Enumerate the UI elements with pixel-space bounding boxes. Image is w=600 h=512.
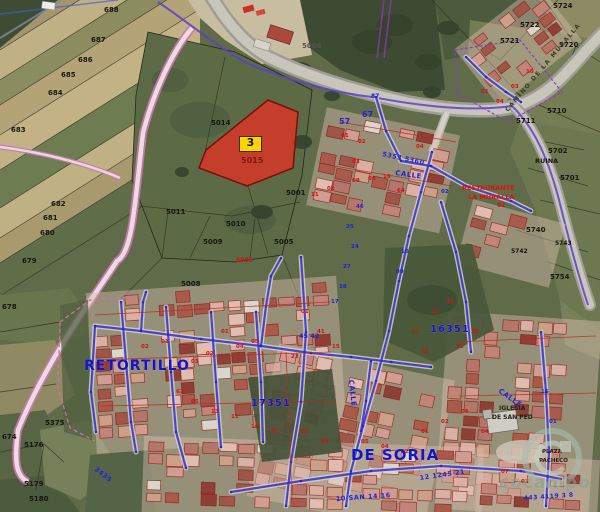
map-label: 08: [368, 176, 376, 182]
map-label: 03: [321, 439, 329, 445]
map-label: 687: [91, 36, 106, 44]
street-node: [431, 151, 434, 154]
map-label: RUINA: [535, 157, 558, 165]
map-label: 5008: [181, 280, 201, 288]
street-node: [390, 361, 393, 364]
map-label: 01: [271, 429, 279, 435]
street-node: [345, 505, 348, 508]
street-node: [135, 451, 138, 454]
map-label: 16351: [430, 324, 470, 335]
street-node: [408, 235, 411, 238]
street-node: [215, 381, 218, 384]
map-label: 11: [231, 414, 239, 420]
map-label: 5711: [516, 117, 536, 125]
map-label: 682: [51, 200, 66, 208]
map-canvas[interactable]: 6886876866856846836826816806796786745375…: [0, 0, 600, 512]
map-label: 685: [61, 71, 76, 79]
map-label: 03: [191, 359, 199, 365]
street-node: [505, 91, 508, 94]
map-label: 27: [343, 264, 351, 270]
map-label: 13: [211, 409, 219, 415]
street-node: [280, 257, 283, 260]
map-label: 05: [461, 409, 469, 415]
map-label: 5015: [241, 156, 264, 165]
street-node: [485, 76, 488, 79]
map-label: 25: [346, 224, 354, 230]
map-label: 22: [291, 354, 299, 360]
map-label: 01: [161, 339, 169, 345]
street-node: [300, 256, 303, 259]
map-label: 10: [401, 249, 409, 255]
map-label: 5009: [203, 238, 223, 246]
map-label: 5011: [166, 208, 186, 216]
street-node: [350, 356, 353, 359]
map-label: 64: [397, 188, 405, 194]
map-label: 02: [327, 186, 335, 192]
map-label: 681: [43, 214, 58, 222]
map-label: 03: [511, 84, 519, 90]
map-label: DE SORIA: [351, 446, 439, 464]
street-node: [255, 311, 258, 314]
map-label: 45 42: [299, 332, 319, 340]
map-label: 04: [236, 344, 244, 350]
street-node: [230, 491, 233, 494]
street-node: [130, 421, 133, 424]
map-label: 16: [383, 174, 391, 180]
street-node: [200, 338, 203, 341]
map-label: 680: [40, 229, 55, 237]
street-node: [465, 301, 468, 304]
map-label: PLAZA: [542, 449, 563, 455]
street-node: [185, 467, 188, 470]
street-node: [370, 360, 373, 363]
map-label: 12: [431, 309, 439, 315]
street-node: [285, 505, 288, 508]
map-label: 01: [421, 429, 429, 435]
map-label: 10: [251, 424, 259, 430]
street-node: [465, 56, 468, 59]
truck: [42, 1, 56, 10]
street-node: [270, 275, 273, 278]
map-label: 05: [251, 339, 259, 345]
map-label: 24: [351, 244, 359, 250]
map-label: 05: [191, 399, 199, 405]
map-label: 17: [331, 299, 339, 305]
street-node: [420, 191, 423, 194]
street-node: [95, 431, 98, 434]
street-node: [350, 470, 353, 473]
street-node: [545, 505, 548, 508]
street-node: [260, 345, 263, 348]
map-label: 18: [339, 284, 347, 290]
map-label: 05: [361, 439, 369, 445]
street-node: [210, 311, 213, 314]
map-label: 684: [48, 89, 63, 97]
map-label: 5743: [555, 240, 572, 247]
street-node: [470, 351, 473, 354]
street-node: [120, 301, 123, 304]
street-node: [220, 446, 223, 449]
street-node: [262, 441, 265, 444]
map-label: 5724: [553, 2, 573, 10]
street-node: [370, 470, 373, 473]
map-label: LA MURALLA: [468, 193, 515, 201]
map-label: 16: [421, 349, 429, 355]
map-label: 5721: [500, 37, 520, 45]
street-node: [520, 470, 523, 473]
street-node: [430, 165, 433, 168]
map-label: IGLESIA: [499, 405, 526, 412]
street-node: [165, 306, 168, 309]
map-label: 01: [549, 419, 557, 425]
map-label: 02: [358, 139, 366, 145]
street-node: [145, 291, 148, 294]
street-node: [94, 325, 97, 328]
map-label: DE SAN PED: [492, 414, 533, 421]
map-label: 57: [339, 117, 350, 126]
street-node: [398, 280, 401, 283]
map-label: 5176: [24, 441, 44, 449]
map-label: 16: [541, 389, 549, 395]
map-label: 01: [341, 133, 349, 139]
map-label: 686: [78, 56, 93, 64]
map-label: 5005: [274, 238, 294, 246]
street-node: [430, 366, 433, 369]
street-node: [388, 330, 391, 333]
map-label: RETORTILLO: [84, 358, 190, 374]
street-node: [90, 391, 93, 394]
street-node: [362, 425, 365, 428]
map-label: 678: [2, 303, 17, 311]
street-node: [260, 381, 263, 384]
map-label: 5701: [560, 174, 580, 182]
map-label: 04: [481, 429, 489, 435]
selected-parcel-badge[interactable]: 3: [239, 136, 262, 152]
map-label: 02: [141, 344, 149, 350]
map-label: 683: [11, 126, 26, 134]
map-label: 5014: [211, 119, 231, 127]
map-label: 5006: [236, 257, 253, 264]
map-label: 31: [456, 344, 464, 350]
map-label: 02: [301, 429, 309, 435]
watermark-text: cocampo: [499, 473, 591, 493]
map-label: 15: [332, 344, 340, 350]
map-label: 01: [221, 329, 229, 335]
map-label: 02: [497, 202, 505, 209]
map-label: 02: [441, 189, 449, 195]
map-label: 5754: [550, 273, 570, 281]
map-label: 5180: [29, 495, 49, 503]
street-node: [360, 430, 363, 433]
map-label: 674: [2, 433, 17, 441]
map-label: RESTAURANTE: [462, 184, 515, 192]
map-label: 5179: [24, 480, 44, 488]
street-node: [520, 101, 523, 104]
map-label: 87: [371, 93, 379, 100]
map-label: 5010: [226, 220, 246, 228]
map-label: 62: [176, 389, 184, 395]
street-node: [375, 380, 378, 383]
map-label: 11: [411, 329, 419, 335]
map-label: 17351: [251, 398, 291, 409]
map-label: 5742: [511, 248, 528, 255]
map-label: 5702: [548, 147, 568, 155]
street-node: [175, 431, 178, 434]
map-label: 01: [301, 309, 309, 315]
map-label: 679: [22, 257, 37, 265]
street-node: [440, 465, 443, 468]
map-label: 43: [446, 299, 454, 305]
map-label: 09: [352, 178, 360, 184]
street-node: [140, 330, 143, 333]
street-node: [530, 210, 533, 213]
map-label: 04: [496, 99, 504, 105]
map-label: 5001: [286, 189, 306, 197]
map-label: 688: [104, 6, 119, 14]
street-node: [455, 251, 458, 254]
map-viewport[interactable]: 6886876866856846836826816806796786745375…: [0, 0, 600, 512]
map-label: 01: [481, 89, 489, 95]
street-node: [540, 331, 543, 334]
map-label: 11: [311, 192, 319, 198]
map-label: 02: [206, 351, 214, 357]
street-node: [300, 480, 303, 483]
map-label: 02: [441, 419, 449, 425]
map-label: 5722: [520, 21, 540, 29]
map-label: 5006: [302, 42, 322, 50]
map-label: 09: [396, 269, 404, 275]
map-label: 03: [352, 159, 360, 165]
street-node: [365, 400, 368, 403]
map-label: 26: [471, 329, 479, 335]
map-label: 5710: [547, 107, 567, 115]
map-label: 5375: [45, 419, 65, 427]
street-node: [440, 201, 443, 204]
map-label: 5740: [526, 226, 546, 234]
map-label: 46: [356, 204, 364, 210]
map-label: 04: [416, 144, 424, 150]
map-label: PACHECO: [539, 458, 568, 464]
map-label: 67: [362, 110, 373, 119]
street-node: [142, 301, 145, 304]
